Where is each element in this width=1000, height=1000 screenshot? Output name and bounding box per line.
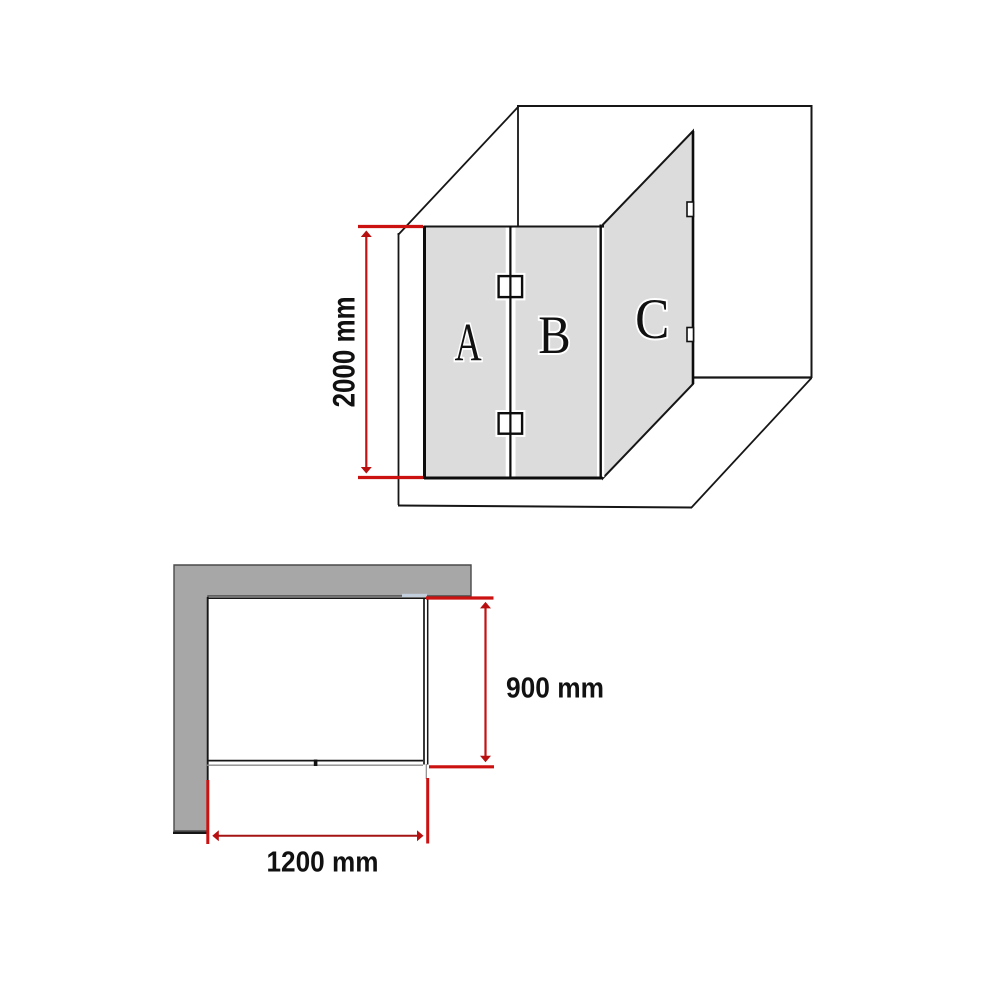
- svg-text:900 mm: 900 mm: [506, 673, 604, 705]
- svg-text:A: A: [455, 313, 482, 372]
- svg-text:C: C: [635, 288, 669, 351]
- svg-text:B: B: [538, 306, 570, 366]
- svg-text:2000 mm: 2000 mm: [325, 296, 361, 407]
- svg-text:1200 mm: 1200 mm: [267, 847, 379, 879]
